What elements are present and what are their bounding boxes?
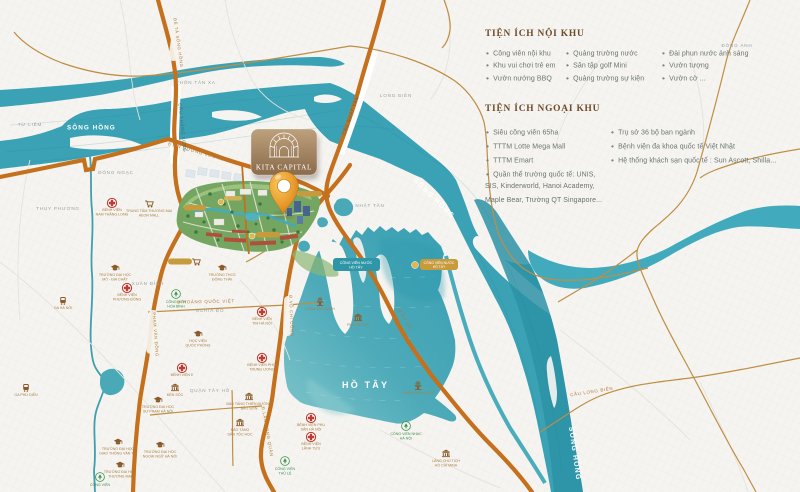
svg-text:BỆNH VIỆN PHỤ: BỆNH VIỆN PHỤ [297, 422, 325, 427]
svg-text:QUẬN TÂY HỒ: QUẬN TÂY HỒ [190, 387, 230, 393]
svg-text:TIM HÀ NỘI: TIM HÀ NỘI [252, 321, 272, 326]
svg-text:ĐÔNG THÁI: ĐÔNG THÁI [212, 277, 232, 282]
svg-text:ĐÔNG NGẠC: ĐÔNG NGẠC [98, 169, 134, 175]
svg-text:BẢO TÀNG THIÊN ĐƯỜNG: BẢO TÀNG THIÊN ĐƯỜNG [226, 401, 272, 406]
svg-text:TỪ LIÊM: TỪ LIÊM [18, 120, 42, 127]
svg-text:AEON MALL: AEON MALL [139, 214, 160, 218]
svg-text:HỒ TÂY: HỒ TÂY [342, 379, 389, 390]
svg-text:THỤY PHƯƠNG: THỤY PHƯƠNG [36, 206, 80, 211]
svg-text:PHƯƠNG ĐÔNG: PHƯƠNG ĐÔNG [113, 297, 142, 302]
svg-text:NGHĨA ĐÔ: NGHĨA ĐÔ [196, 307, 225, 313]
svg-text:THỦ LỆ: THỦ LỆ [279, 471, 292, 476]
svg-text:TRƯỜNG ĐẠI HỌC: TRƯỜNG ĐẠI HỌC [99, 272, 132, 277]
svg-text:TRƯỜNG ĐẠI HỌC: TRƯỜNG ĐẠI HỌC [104, 469, 137, 474]
svg-text:SƯ PHẠM HÀ NỘI: SƯ PHẠM HÀ NỘI [143, 409, 173, 414]
svg-text:LĂNG CHỦ TỊCH: LĂNG CHỦ TỊCH [432, 458, 460, 463]
svg-text:GA PHÚ DIỄN: GA PHÚ DIỄN [14, 392, 38, 397]
svg-text:BẢO SƠN: BẢO SƠN [241, 406, 258, 411]
svg-text:TRƯỜNG THCS: TRƯỜNG THCS [208, 272, 236, 277]
svg-text:BỆNH VIỆN PHỔI: BỆNH VIỆN PHỔI [247, 362, 276, 367]
svg-text:TRƯỜNG ĐẠI HỌC: TRƯỜNG ĐẠI HỌC [102, 446, 135, 451]
svg-text:DÂN TỘC HỌC: DÂN TỘC HỌC [227, 432, 252, 437]
svg-text:TRUNG TÂM THƯƠNG MẠI: TRUNG TÂM THƯƠNG MẠI [126, 209, 172, 213]
svg-text:CÔNG VIÊN: CÔNG VIÊN [90, 482, 111, 487]
svg-text:BỆNH VIỆN: BỆNH VIỆN [102, 207, 122, 212]
svg-text:BỆNH VIỆN: BỆNH VIỆN [252, 316, 272, 321]
svg-text:TRƯỜNG ĐẠI HỌC: TRƯỜNG ĐẠI HỌC [142, 404, 175, 409]
svg-text:QUỐC PHÒNG: QUỐC PHÒNG [186, 343, 211, 348]
svg-text:CHÙA TRẤN QUỐC: CHÙA TRẤN QUỐC [402, 390, 435, 395]
svg-text:HỒ CHÍ MINH: HỒ CHÍ MINH [435, 463, 458, 468]
svg-text:LONG BIÊN: LONG BIÊN [380, 91, 412, 98]
svg-text:NHẬT TÂN: NHẬT TÂN [355, 202, 384, 208]
svg-text:LÃNH TỰU: LÃNH TỰU [302, 446, 321, 451]
svg-text:BỆNH VIỆN E: BỆNH VIỆN E [171, 372, 194, 377]
svg-text:CÔNG VIÊN: CÔNG VIÊN [275, 466, 296, 471]
svg-text:SẢN HÀ NỘI: SẢN HÀ NỘI [301, 427, 322, 432]
svg-text:TRƯỜNG ĐẠI HỌC: TRƯỜNG ĐẠI HỌC [144, 449, 177, 454]
svg-text:NAM THĂNG LONG: NAM THĂNG LONG [96, 213, 129, 217]
svg-text:XUÂN ĐỈNH: XUÂN ĐỈNH [132, 280, 164, 286]
svg-text:CÔNG VIÊN NHẠC: CÔNG VIÊN NHẠC [390, 431, 422, 436]
svg-text:HÀ NỘI: HÀ NỘI [400, 436, 412, 441]
svg-text:KITA CAPITAL: KITA CAPITAL [256, 164, 312, 172]
svg-text:GIAO THÔNG VẬN TẢI: GIAO THÔNG VẬN TẢI [99, 451, 137, 456]
svg-text:PHỦ TÂY HỒ: PHỦ TÂY HỒ [347, 322, 369, 327]
svg-text:Đ.HOÀNG QUỐC VIỆT: Đ.HOÀNG QUỐC VIỆT [177, 298, 235, 304]
svg-text:NGOẠI NGỮ HÀ NỘI: NGOẠI NGỮ HÀ NỘI [143, 454, 177, 459]
svg-text:CẦU LONG BIÊN: CẦU LONG BIÊN [570, 386, 614, 398]
svg-text:ĐỀN SÓC: ĐỀN SÓC [167, 392, 184, 397]
svg-text:BẢO TÀNG: BẢO TÀNG [231, 427, 250, 432]
svg-text:HỒ TÂY: HỒ TÂY [349, 265, 363, 270]
svg-text:HỌC VIỆN: HỌC VIỆN [189, 338, 207, 343]
svg-text:TRUNG ƯƠNG: TRUNG ƯƠNG [249, 368, 275, 372]
svg-text:HỒ TÂY: HỒ TÂY [433, 264, 446, 269]
svg-text:CHÙA TẢO SÁCH: CHÙA TẢO SÁCH [305, 306, 335, 311]
svg-text:THÔN TÂN XA: THÔN TÂN XA [176, 79, 216, 85]
svg-text:BỆNH VIỆN: BỆNH VIỆN [301, 441, 321, 446]
svg-text:MỎ - ĐỊA CHẤT: MỎ - ĐỊA CHẤT [102, 277, 128, 282]
svg-text:BỆNH VIỆN: BỆNH VIỆN [117, 292, 137, 297]
svg-text:THƯƠNG MẠI: THƯƠNG MẠI [108, 475, 132, 479]
svg-text:GA HÀ NỘI: GA HÀ NỘI [54, 305, 72, 310]
svg-text:CÔNG VIÊN NƯỚC: CÔNG VIÊN NƯỚC [340, 260, 373, 265]
